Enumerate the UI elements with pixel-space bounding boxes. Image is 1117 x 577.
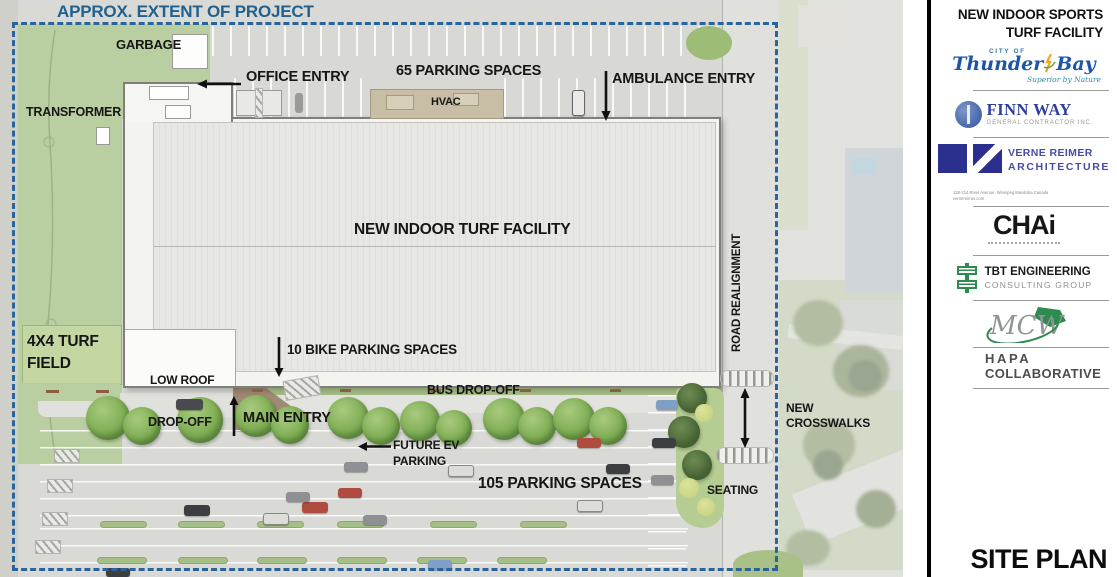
finn-way-logo: FINN WAY GENERAL CONTRACTOR INC. [931, 94, 1117, 134]
hapa-line1: HAPA [985, 351, 1117, 367]
label-drop-off: DROP-OFF [148, 415, 212, 429]
mcw-logo: MCW [931, 304, 1117, 344]
thunder-bay-name1: Thunder [952, 53, 1043, 75]
verne-reimer-line2: ARCHITECTURE [1008, 161, 1110, 175]
office-entry-arrow-icon [197, 77, 243, 91]
chai-logo: CHAi [931, 210, 1117, 252]
project-title: NEW INDOOR SPORTS TURF FACILITY [931, 0, 1117, 45]
sidebar-divider [973, 206, 1109, 207]
future-ev-arrow-icon [358, 440, 392, 453]
label-new-crosswalks: NEW CROSSWALKS [786, 401, 870, 431]
thunder-bay-name2: Bay [1056, 53, 1095, 75]
sheet-title: SITE PLAN [970, 544, 1107, 575]
sidebar-divider [973, 90, 1109, 91]
thunderbird-icon [1043, 54, 1056, 73]
extent-label: APPROX. EXTENT OF PROJECT [57, 2, 314, 21]
label-turf-field: 4X4 TURF FIELD [27, 331, 99, 376]
label-hvac: HVAC [431, 96, 461, 108]
hapa-line2: COLLABORATIVE [985, 366, 1117, 382]
aerial-fade-overlay [778, 0, 903, 577]
sidebar-divider [973, 255, 1109, 256]
label-105-parking: 105 PARKING SPACES [478, 475, 642, 492]
tbt-subtitle: CONSULTING GROUP [985, 280, 1093, 290]
chai-name: CHAi [931, 212, 1117, 239]
sidebar-divider [973, 388, 1109, 389]
verne-reimer-logo: VERNE REIMER ARCHITECTURE 128-214 River … [931, 141, 1117, 203]
finn-way-name: FINN WAY [987, 102, 1094, 119]
chai-tagline-rule [988, 242, 1060, 244]
tbt-engineering-logo: TBT ENGINEERING CONSULTING GROUP [931, 259, 1117, 297]
label-garbage: GARBAGE [116, 38, 181, 53]
label-bus-drop-off: BUS DROP-OFF [427, 383, 520, 397]
verne-reimer-diagonal-square-icon [973, 144, 1002, 173]
label-office-entry: OFFICE ENTRY [246, 69, 349, 85]
mcw-swoosh-icon: MCW [976, 305, 1072, 343]
project-extent-boundary [12, 22, 778, 571]
label-transformer: TRANSFORMER [26, 105, 121, 119]
label-ambulance-entry: AMBULANCE ENTRY [612, 71, 755, 87]
thunder-bay-cityof: CITY OF [989, 48, 1026, 55]
label-facility: NEW INDOOR TURF FACILITY [354, 221, 571, 238]
label-future-ev: FUTURE EV PARKING [393, 438, 459, 469]
tbt-name: TBT ENGINEERING [985, 266, 1093, 280]
thunder-bay-tagline: Superior by Nature [931, 75, 1117, 84]
ambulance-entry-arrow-icon [599, 71, 613, 121]
verne-reimer-square-icon [938, 144, 967, 173]
label-65-parking: 65 PARKING SPACES [396, 63, 541, 79]
label-seating: SEATING [707, 484, 758, 497]
verne-reimer-website: vernereimer.com [953, 196, 1107, 202]
aerial-context [778, 0, 903, 577]
label-road-realignment: ROAD REALIGNMENT [731, 222, 744, 352]
thunder-bay-logo: CITY OF ThunderBay Superior by Nature [931, 47, 1117, 87]
finn-way-emblem-icon [955, 101, 982, 128]
sidebar-divider [973, 137, 1109, 138]
site-plan-drawing: APPROX. EXTENT OF PROJECT GARBAGE OFFICE… [0, 0, 903, 577]
hapa-collaborative-logo: HAPA COLLABORATIVE [931, 351, 1117, 385]
sidebar-divider [973, 347, 1109, 348]
crosswalk-double-arrow-icon [737, 388, 753, 448]
label-main-entry: MAIN ENTRY [243, 410, 331, 426]
finn-way-subtitle: GENERAL CONTRACTOR INC. [987, 120, 1094, 126]
main-entry-arrow-icon [227, 396, 241, 436]
tbt-ibeam-icon [956, 263, 978, 293]
presentation-board: APPROX. EXTENT OF PROJECT GARBAGE OFFICE… [0, 0, 1117, 577]
sidebar-divider [973, 300, 1109, 301]
bike-parking-arrow-icon [272, 337, 286, 377]
label-low-roof: LOW ROOF [150, 374, 214, 387]
mcw-name: MCW [989, 311, 1066, 341]
verne-reimer-line1: VERNE REIMER [1008, 147, 1110, 161]
title-block-sidebar: NEW INDOOR SPORTS TURF FACILITY CITY OF … [927, 0, 1117, 577]
label-bike-parking: 10 BIKE PARKING SPACES [287, 342, 457, 357]
